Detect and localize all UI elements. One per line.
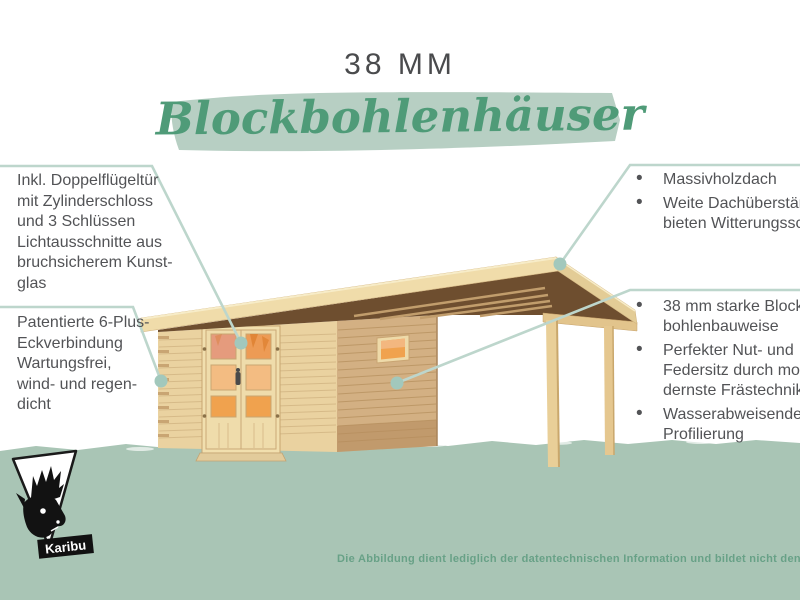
annotation-line: Wartungsfrei, <box>17 354 150 375</box>
door-handle-icon <box>236 368 241 385</box>
annotation-line: und 3 Schlüssen <box>17 212 173 233</box>
bullet-item: Perfekter Nut- und Federsitz durch mo de… <box>630 341 800 401</box>
page-title: Blockbohlenhäuser <box>0 86 800 147</box>
cabin-illustration <box>141 257 637 467</box>
annotation-line: bruchsicherem Kunst- <box>17 253 173 274</box>
annotation-line: mit Zylinderschloss <box>17 192 173 213</box>
callout-dot-door <box>235 337 248 350</box>
ground-band <box>0 440 800 600</box>
annotation-wall-features: 38 mm starke Block- bohlenbauweise Perfe… <box>630 297 800 449</box>
infographic-canvas: Karibu 38 MM Blockbohlenhäuser Inkl. Dop… <box>0 0 800 600</box>
annotation-roof-features: Massivholzdach Weite Dachüberstände biet… <box>630 170 800 238</box>
annotation-line: Wasserabweisende <box>663 405 800 425</box>
door-step <box>196 453 286 461</box>
annotation-line: bieten Witterungsschutz <box>663 214 800 234</box>
size-heading: 38 MM <box>0 48 800 82</box>
callout-dot-sidewall <box>391 377 404 390</box>
annotation-line: Eckverbindung <box>17 334 150 355</box>
bullet-item: Weite Dachüberstände bieten Witterungssc… <box>630 194 800 234</box>
annotation-line: Profilierung <box>663 425 800 445</box>
annotation-line: Weite Dachüberstände <box>663 194 800 214</box>
annotation-line: Inkl. Doppelflügeltür <box>17 171 173 192</box>
annotation-line: Massivholzdach <box>663 170 800 190</box>
annotation-line: glas <box>17 274 173 295</box>
annotation-line: Lichtausschnitte aus <box>17 233 173 254</box>
annotation-line: Federsitz durch mo <box>663 361 800 381</box>
annotation-line: Patentierte 6-Plus- <box>17 313 150 334</box>
callout-dot-roof <box>554 258 567 271</box>
disclaimer-text: Die Abbildung dient lediglich der datent… <box>337 553 800 565</box>
annotation-corner-joint: Patentierte 6-Plus- Eckverbindung Wartun… <box>17 313 150 416</box>
callout-dot-corner <box>155 375 168 388</box>
side-window <box>377 335 409 363</box>
bullet-item: Massivholzdach <box>630 170 800 190</box>
cabin-side-wall <box>337 315 437 452</box>
annotation-line: 38 mm starke Block- <box>663 297 800 317</box>
annotation-door: Inkl. Doppelflügeltür mit Zylinderschlos… <box>17 171 173 294</box>
annotation-line: dernste Frästechnik <box>663 381 800 401</box>
annotation-line: Perfekter Nut- und <box>663 341 800 361</box>
annotation-line: dicht <box>17 395 150 416</box>
bullet-item: 38 mm starke Block- bohlenbauweise <box>630 297 800 337</box>
bullet-item: Wasserabweisende Profilierung <box>630 405 800 445</box>
annotation-line: bohlenbauweise <box>663 317 800 337</box>
annotation-line: wind- und regen- <box>17 375 150 396</box>
